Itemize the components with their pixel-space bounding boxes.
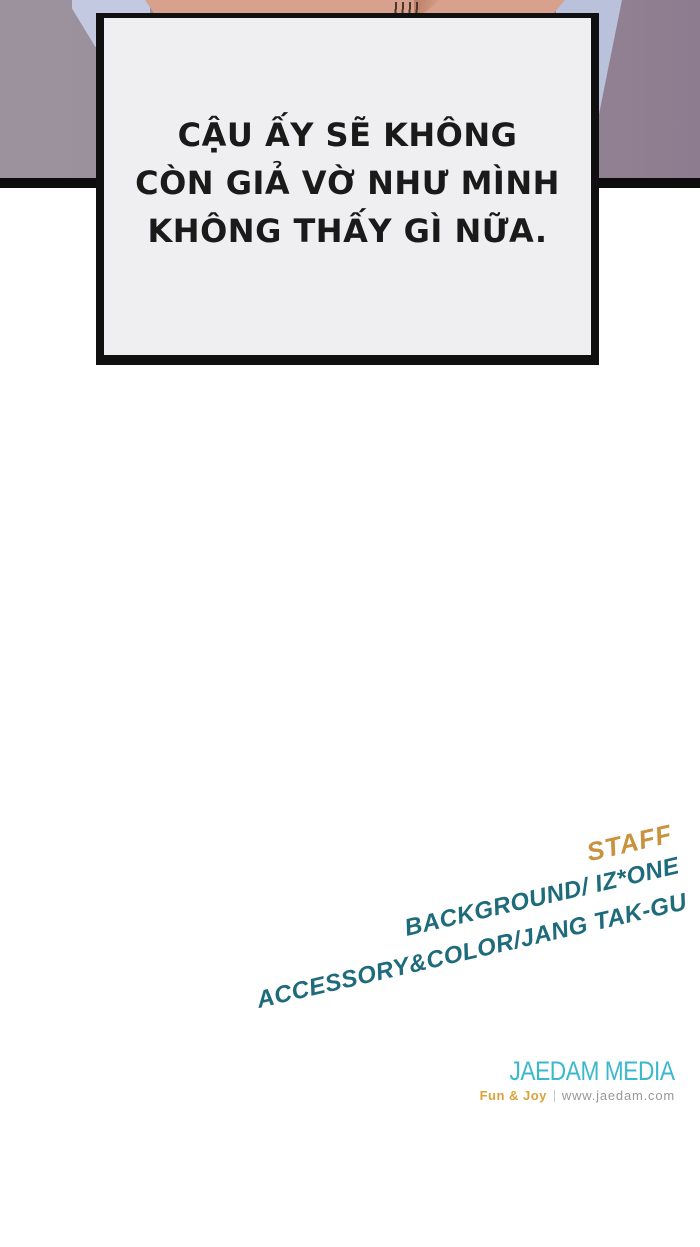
webtoon-page: CẬU ẤY SẼ KHÔNGCÒN GIẢ VỜ NHƯ MÌNHKHÔNG …: [0, 0, 700, 1247]
dialogue-line: CÒN GIẢ VỜ NHƯ MÌNH: [104, 159, 591, 207]
dialogue-line: KHÔNG THẤY GÌ NỮA.: [104, 207, 591, 255]
speech-bubble: CẬU ẤY SẼ KHÔNGCÒN GIẢ VỜ NHƯ MÌNHKHÔNG …: [96, 13, 599, 365]
publisher-name: JAEDAM MEDIA: [510, 1058, 675, 1085]
publisher-sub-row: Fun & Joy www.jaedam.com: [478, 1088, 675, 1103]
dialogue-line: CẬU ẤY SẼ KHÔNG: [104, 111, 591, 159]
publisher-tagline: Fun & Joy: [480, 1088, 547, 1103]
publisher-logo: JAEDAM MEDIA Fun & Joy www.jaedam.com: [478, 1058, 675, 1103]
publisher-divider: [554, 1090, 555, 1102]
dialogue-text: CẬU ẤY SẼ KHÔNGCÒN GIẢ VỜ NHƯ MÌNHKHÔNG …: [104, 111, 591, 255]
publisher-website: www.jaedam.com: [562, 1088, 675, 1103]
